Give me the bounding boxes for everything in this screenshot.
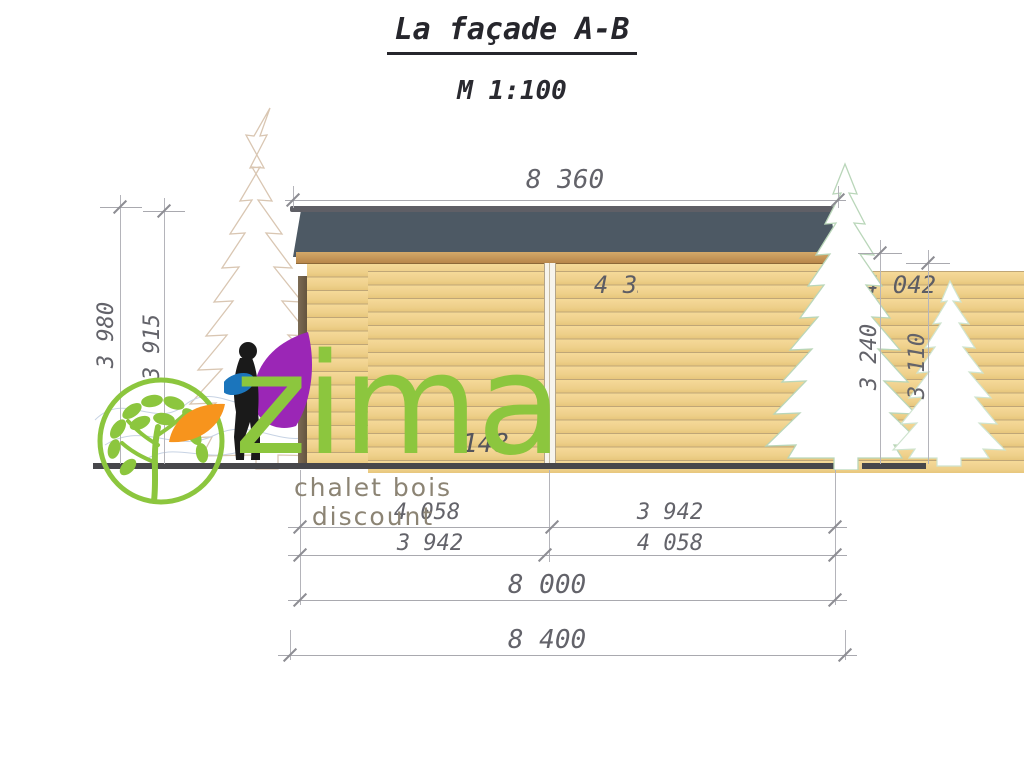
- logo-tagline: chalet bois discount: [228, 473, 518, 531]
- dim-top-width: 8 360: [500, 165, 630, 195]
- dim-total-wall: 8 000: [482, 570, 612, 600]
- dimension-line: [288, 600, 847, 601]
- dim-total-overall: 8 400: [482, 625, 612, 655]
- dim-height-right-inner: 3 110: [905, 306, 929, 426]
- scale-label: M 1:100: [0, 76, 1024, 106]
- facade-drawing: La façade A-B M 1:100 4 358 4 042 8 360 …: [0, 0, 1024, 768]
- dim-row2-left: 3 942: [365, 531, 495, 556]
- dimension-line: [278, 655, 857, 656]
- dim-row2-right: 4 058: [605, 531, 735, 556]
- page-title: La façade A-B: [0, 12, 1024, 47]
- logo-brand: zima: [234, 336, 561, 476]
- dim-row1-right: 3 942: [605, 500, 735, 525]
- pine-tree-far-right-icon: [875, 278, 1024, 468]
- dim-height-right-outer: 3 240: [857, 297, 881, 417]
- dimension-line: [285, 200, 846, 201]
- extension-line: [835, 470, 836, 605]
- logo-leaf-orange-icon: [167, 398, 227, 448]
